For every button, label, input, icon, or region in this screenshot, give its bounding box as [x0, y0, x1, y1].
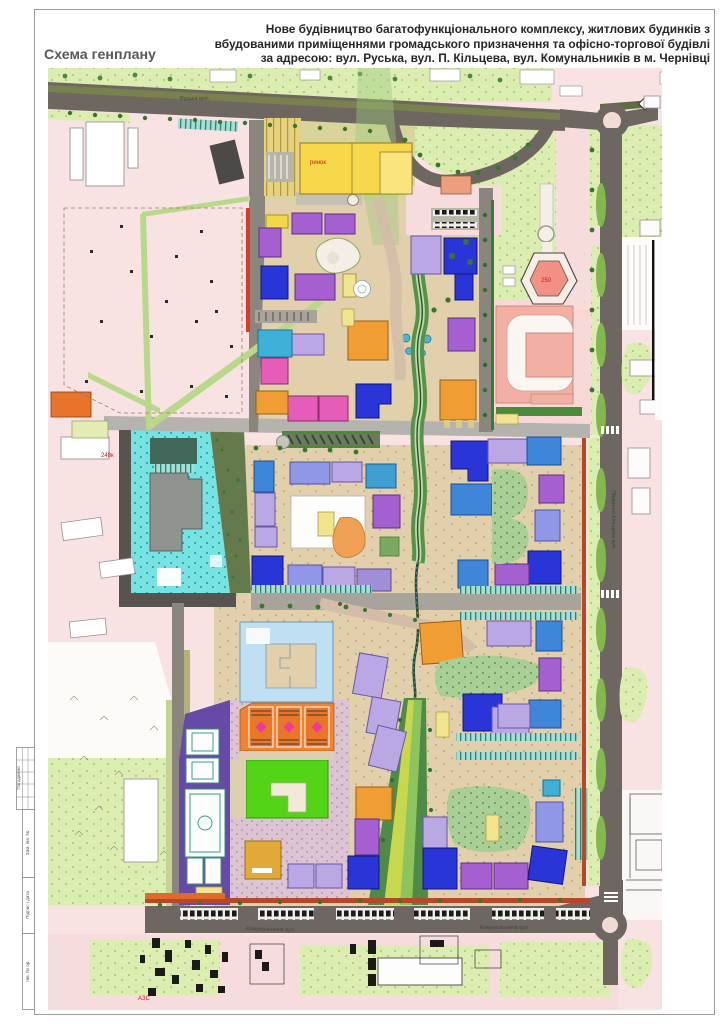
svg-text:ринок: ринок [310, 160, 326, 166]
svg-text:АЗС: АЗС [138, 996, 150, 1002]
svg-text:за адресою: вул. Руська, вул.: за адресою: вул. Руська, вул. П. Кільцев… [261, 51, 710, 65]
svg-text:Інв. № ор.: Інв. № ор. [25, 960, 30, 981]
svg-text:250: 250 [541, 278, 552, 284]
svg-text:вбудованими приміщеннями грома: вбудованими приміщеннями громадського пр… [215, 37, 710, 51]
svg-text:Схема генплану: Схема генплану [44, 47, 156, 63]
svg-text:Комунальників вул.: Комунальників вул. [480, 925, 530, 931]
svg-text:Погоджено: Погоджено [16, 766, 21, 790]
svg-text:Підпис і дата: Підпис і дата [25, 891, 30, 919]
svg-text:248к: 248к [101, 453, 114, 459]
svg-text:Руська вул.: Руська вул. [180, 96, 210, 102]
svg-text:Південно-Кільцева вул.: Південно-Кільцева вул. [610, 490, 616, 550]
svg-text:Нове будівництво багатофункціо: Нове будівництво багатофункціонального к… [266, 22, 710, 36]
svg-text:Зам. інв. №: Зам. інв. № [25, 831, 30, 856]
